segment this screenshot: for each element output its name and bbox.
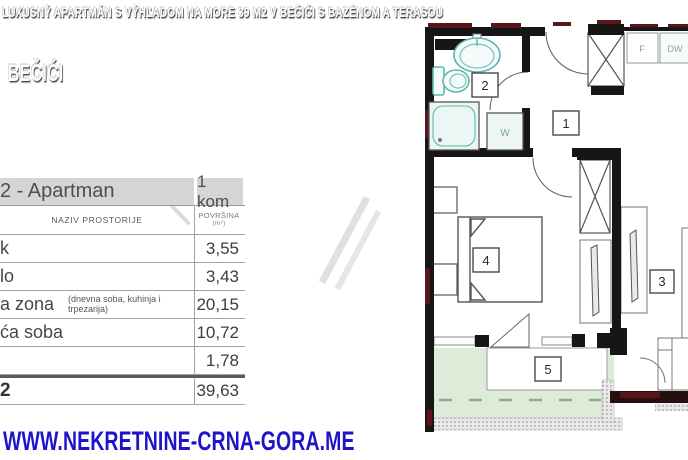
room-name-note: (dnevna soba, kuhinja i trpezarija) xyxy=(68,295,173,314)
terrace xyxy=(429,348,622,430)
room-name: lo xyxy=(0,263,194,290)
room-name-main: a zona xyxy=(0,294,54,315)
page-title: LUXUSNÝ APARTMÁN S VÝHĽADOM NA MORE 39 M… xyxy=(2,5,443,20)
table-row: a zona (dnevna soba, kuhinja i trpezarij… xyxy=(0,291,245,319)
room-area: 20,15 xyxy=(194,291,243,318)
room-name: k xyxy=(0,235,194,262)
total-label: 2 xyxy=(0,378,194,404)
window-band xyxy=(434,314,572,347)
floor-plan-drawing: F DW xyxy=(425,20,688,435)
room-5-label: 5 xyxy=(544,362,551,377)
room-2-label: 2 xyxy=(481,78,488,93)
table-header-row: 2 - Apartman 1 kom xyxy=(0,178,245,206)
area-unit: (m²) xyxy=(212,220,225,228)
adjacent-room xyxy=(658,338,688,390)
room-1-label: 1 xyxy=(562,116,569,131)
floor-plan: F DW xyxy=(425,20,688,435)
column-area: POVRŠINA (m²) xyxy=(194,206,243,234)
fridge-label: F xyxy=(639,44,645,54)
balcony-sliding-door xyxy=(621,207,647,313)
toilet-bowl xyxy=(443,70,469,92)
table-row: 1,78 xyxy=(0,347,245,375)
balcony-rail xyxy=(682,228,688,340)
terrace-hatched-edge xyxy=(429,418,622,430)
table-row: ća soba 10,72 xyxy=(0,319,245,347)
table-row: lo 3,43 xyxy=(0,263,245,291)
room-area: 3,43 xyxy=(194,263,243,290)
nightstand xyxy=(433,187,457,213)
apartment-count: 1 kom xyxy=(194,178,243,205)
room-area: 3,55 xyxy=(194,235,243,262)
listing-image: LUXUSNÝ APARTMÁN S VÝHĽADOM NA MORE 39 M… xyxy=(0,0,688,460)
washer-label: W xyxy=(500,128,510,139)
kitchen-cabinets: F DW xyxy=(627,27,688,63)
table-total-row: 2 39,63 xyxy=(0,375,245,405)
room-name xyxy=(0,347,194,374)
room-4-label: 4 xyxy=(482,253,489,268)
sliding-door xyxy=(580,240,611,323)
edge-hatch xyxy=(655,403,688,411)
apartment-title: 2 - Apartman xyxy=(0,178,194,205)
entrance-door-swing xyxy=(546,32,588,74)
total-area: 39,63 xyxy=(194,378,243,404)
room-area: 10,72 xyxy=(194,319,243,346)
area-header: POVRŠINA xyxy=(198,212,239,220)
bedroom-door-swing xyxy=(533,158,572,197)
room-area: 1,78 xyxy=(194,347,243,374)
table-subheader-row: NAZIV PROSTORIJE POVRŠINA (m²) xyxy=(0,206,245,235)
entry-wardrobe xyxy=(588,33,624,86)
room-name: ća soba xyxy=(0,319,194,346)
apartment-area-table: 2 - Apartman 1 kom NAZIV PROSTORIJE POVR… xyxy=(0,178,245,405)
shower xyxy=(429,102,479,150)
column-room-name: NAZIV PROSTORIJE xyxy=(0,206,194,234)
dishwasher-label: DW xyxy=(668,44,683,54)
location-title: BEČIĆI xyxy=(8,60,64,88)
terrace-door-swing xyxy=(491,314,529,347)
shower-drain xyxy=(438,138,442,142)
bedroom-wardrobe xyxy=(580,160,610,233)
website-link[interactable]: WWW.NEKRETNINE-CRNA-GORA.ME xyxy=(3,426,355,457)
nightstand xyxy=(433,264,457,295)
table-row: k 3,55 xyxy=(0,235,245,263)
room-name: a zona (dnevna soba, kuhinja i trpezarij… xyxy=(0,291,194,318)
bed xyxy=(458,217,542,302)
room-3-label: 3 xyxy=(658,274,665,289)
